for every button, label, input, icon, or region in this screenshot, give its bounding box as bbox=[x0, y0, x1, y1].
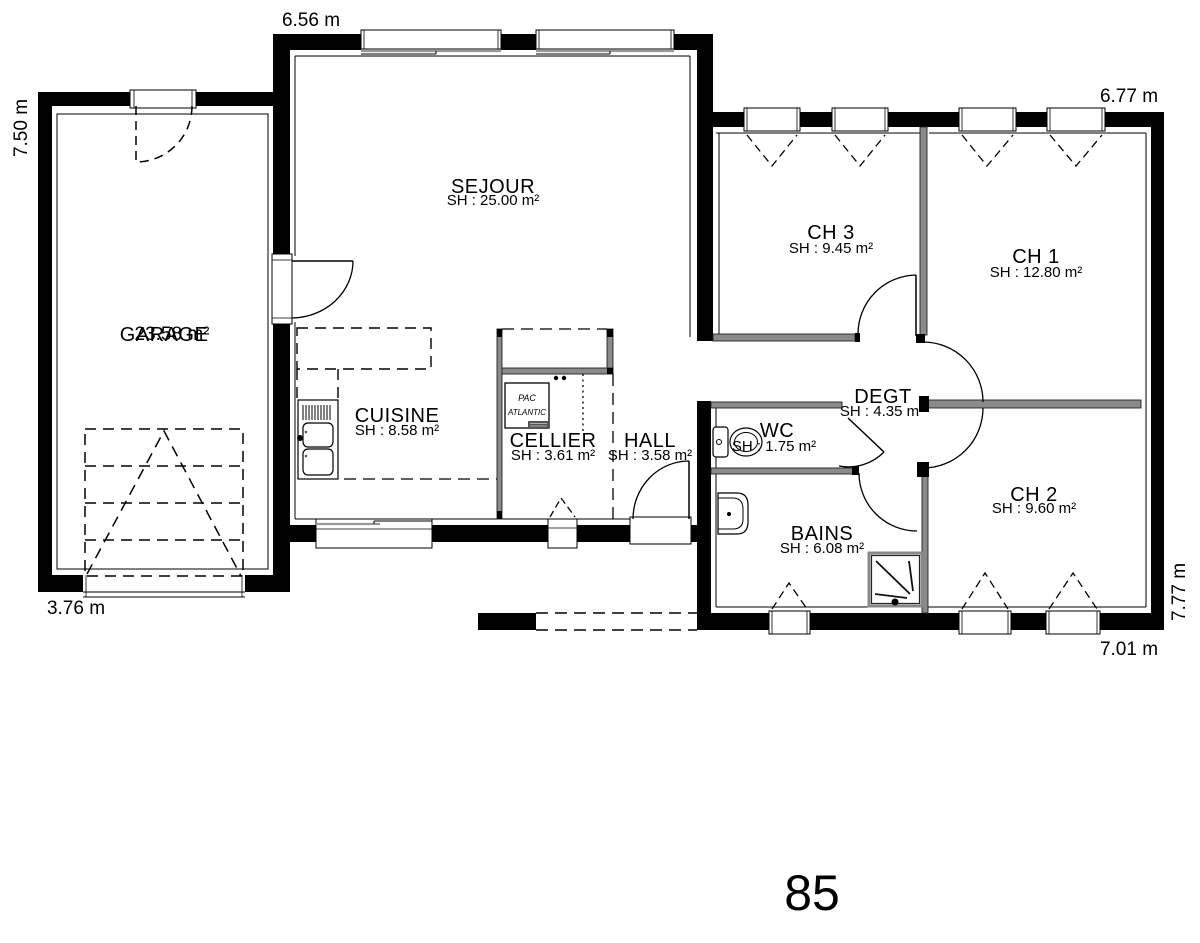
svg-text:23.58 m²: 23.58 m² bbox=[135, 324, 210, 345]
svg-text:ATLANTIC: ATLANTIC bbox=[507, 408, 546, 417]
svg-text:7.77 m: 7.77 m bbox=[1169, 563, 1190, 621]
svg-text:6.77 m: 6.77 m bbox=[1100, 86, 1158, 107]
svg-text:SH : 8.58 m²: SH : 8.58 m² bbox=[355, 422, 439, 439]
svg-text:SH : 4.35 m²: SH : 4.35 m² bbox=[840, 403, 924, 420]
svg-text:SH : 12.80 m²: SH : 12.80 m² bbox=[990, 264, 1083, 281]
svg-text:SH : 6.08 m²: SH : 6.08 m² bbox=[780, 540, 864, 557]
svg-text:85: 85 bbox=[784, 865, 840, 921]
svg-text:7.01 m: 7.01 m bbox=[1100, 639, 1158, 660]
svg-text:SH : 25.00 m²: SH : 25.00 m² bbox=[447, 192, 540, 209]
svg-text:SH : 1.75 m²: SH : 1.75 m² bbox=[732, 438, 816, 455]
svg-text:SH : 9.60 m²: SH : 9.60 m² bbox=[992, 500, 1076, 517]
svg-text:3.76 m: 3.76 m bbox=[47, 598, 105, 619]
svg-text:SH : 9.45 m²: SH : 9.45 m² bbox=[789, 240, 873, 257]
svg-text:6.56 m: 6.56 m bbox=[282, 10, 340, 31]
svg-text:SH : 3.61 m²: SH : 3.61 m² bbox=[511, 447, 595, 464]
svg-text:7.50 m: 7.50 m bbox=[11, 99, 32, 157]
svg-text:PAC: PAC bbox=[518, 393, 536, 403]
svg-text:SH : 3.58 m²: SH : 3.58 m² bbox=[608, 447, 692, 464]
